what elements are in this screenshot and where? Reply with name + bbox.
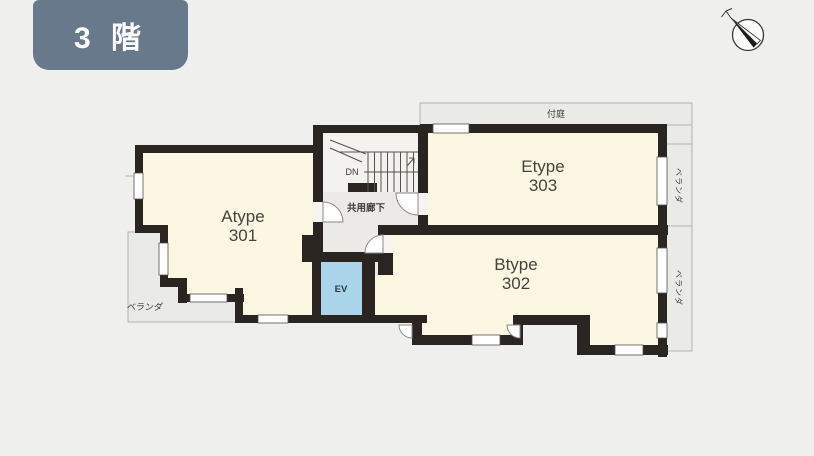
stairs-down-label: DN xyxy=(346,167,359,177)
veranda-right-column xyxy=(666,125,692,351)
room-atype-name: Atype xyxy=(221,207,264,226)
door-arc-notch-1 xyxy=(399,325,412,338)
room-etype-number: 303 xyxy=(529,176,557,195)
garden-label: 付庭 xyxy=(547,108,565,119)
room-atype-number: 301 xyxy=(229,226,257,245)
floor-plan-page: Atype 301 Btype 302 Etype 303 EV DN 共用廊下… xyxy=(0,0,814,456)
veranda-right-lower-label: ベランダ xyxy=(674,270,684,306)
room-btype-number: 302 xyxy=(502,274,530,293)
room-btype-name: Btype xyxy=(494,255,537,274)
room-etype-name: Etype xyxy=(521,157,564,176)
veranda-right-upper-label: ベランダ xyxy=(674,168,684,204)
floor-badge-label: 3 階 xyxy=(74,13,147,57)
floor-badge: 3 階 xyxy=(33,0,188,70)
elevator-label: EV xyxy=(335,284,348,295)
corridor-label: 共用廊下 xyxy=(347,202,386,214)
compass-icon xyxy=(722,9,764,51)
veranda-left-label: ベランダ xyxy=(126,301,164,312)
